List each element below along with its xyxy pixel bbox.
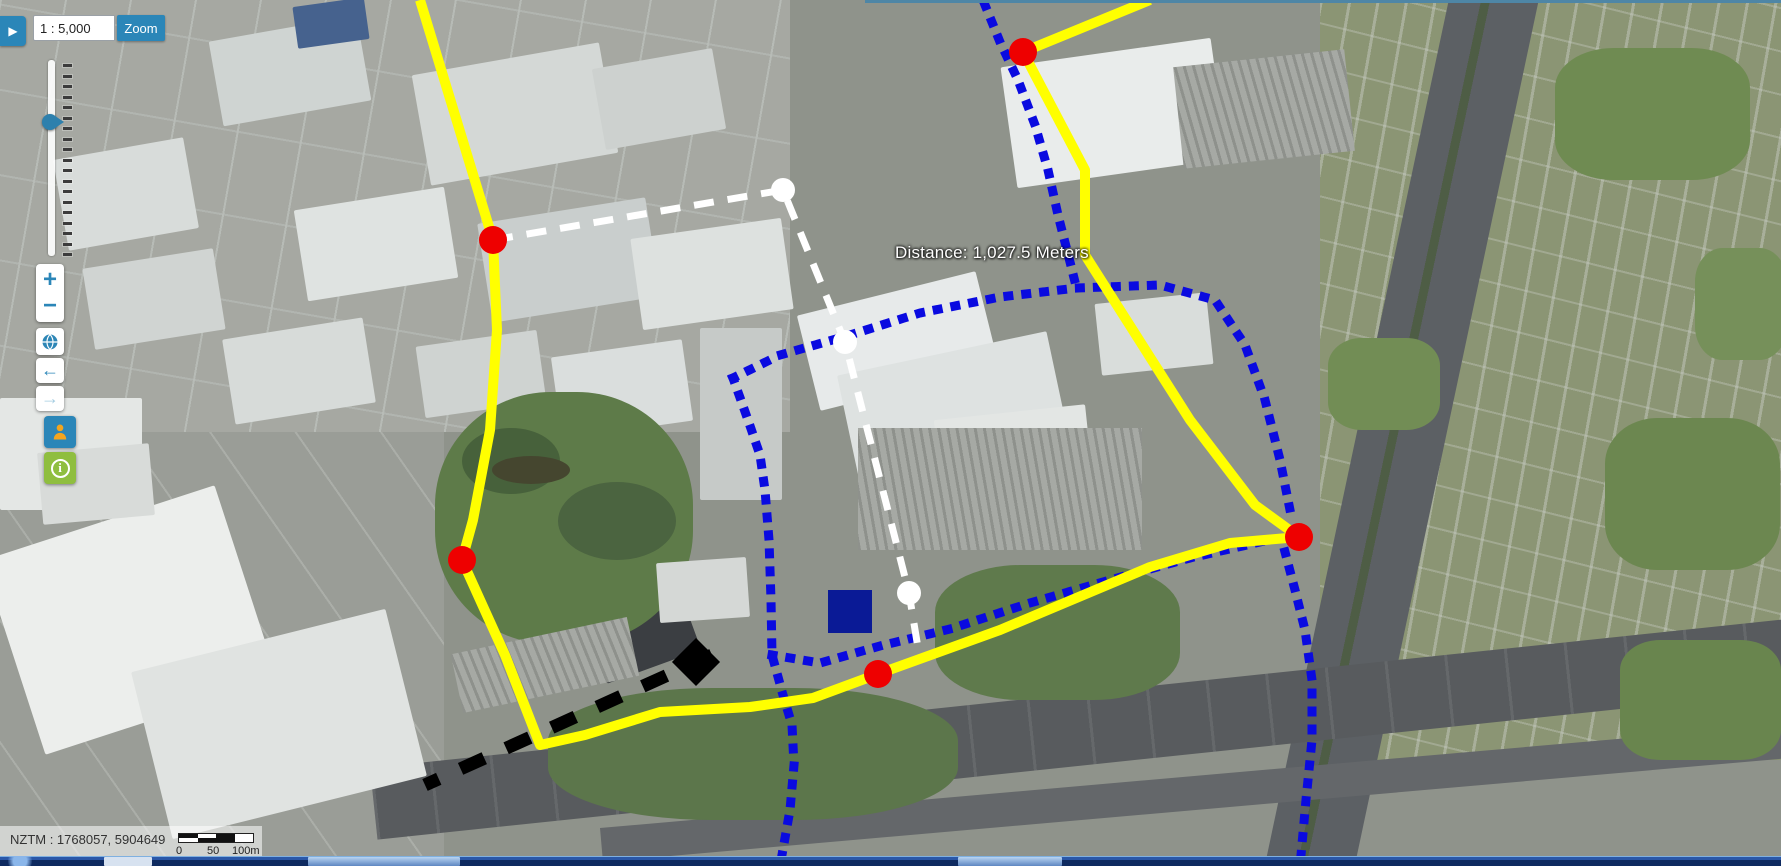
zoom-slider-tick: [63, 85, 72, 88]
zoom-slider-tick: [63, 222, 72, 225]
zoom-slider-tick: [63, 96, 72, 99]
imagery-patch: [548, 688, 958, 820]
imagery-patch: [935, 565, 1180, 700]
zoom-slider-tick: [63, 211, 72, 214]
zoom-slider-tick: [63, 127, 72, 130]
zoom-slider-tick: [63, 75, 72, 78]
map-application-window: Distance: 1,027.5 Meters ▶ Zoom + − ← → …: [0, 0, 1781, 866]
taskbar-button[interactable]: [958, 857, 1062, 866]
zoom-slider-tick: [63, 243, 72, 246]
imagery-patch: [1555, 48, 1750, 180]
chevron-right-icon: ▶: [8, 24, 17, 38]
imagery-patch: [1173, 49, 1355, 168]
forward-arrow-icon: →: [41, 388, 59, 409]
taskbar-button[interactable]: [308, 857, 460, 866]
zoom-slider-tick: [63, 201, 72, 204]
aerial-imagery[interactable]: [0, 0, 1781, 866]
zoom-slider-tick: [63, 159, 72, 162]
globe-icon: [40, 332, 60, 352]
zoom-slider-track[interactable]: [48, 60, 55, 256]
zoom-slider-handle[interactable]: [42, 114, 58, 130]
zoom-out-button[interactable]: −: [36, 293, 64, 319]
zoom-slider-tick: [63, 64, 72, 67]
sidebar-expand-button[interactable]: ▶: [0, 16, 26, 46]
zoom-slider-tick: [63, 190, 72, 193]
zoom-slider-tick: [63, 138, 72, 141]
imagery-patch: [858, 428, 1142, 550]
person-icon: [50, 422, 70, 442]
imagery-patch: [1620, 640, 1781, 760]
identify-person-button[interactable]: [44, 416, 76, 448]
next-extent-button[interactable]: →: [36, 386, 64, 411]
imagery-patch: [1605, 418, 1780, 570]
imagery-patch: [656, 557, 750, 623]
zoom-in-button[interactable]: +: [36, 267, 64, 293]
imagery-patch: [558, 482, 676, 560]
zoom-in-out-panel: + −: [36, 264, 64, 322]
zoom-button[interactable]: Zoom: [117, 15, 165, 41]
imagery-patch: [1328, 338, 1440, 430]
full-extent-button[interactable]: [36, 328, 64, 355]
info-icon: i: [51, 459, 70, 478]
zoom-slider-tick: [63, 180, 72, 183]
zoom-slider-tick: [63, 253, 72, 256]
zoom-slider-tick: [63, 232, 72, 235]
imagery-patch: [1695, 248, 1781, 360]
zoom-slider-tick: [63, 169, 72, 172]
coordinate-readout: NZTM : 1768057, 5904649: [10, 832, 165, 847]
zoom-slider-tick: [63, 148, 72, 151]
zoom-slider-tick: [63, 117, 72, 120]
distance-measurement-label: Distance: 1,027.5 Meters: [895, 243, 1089, 263]
taskbar-button[interactable]: [104, 857, 152, 866]
imagery-patch: [1095, 292, 1214, 375]
previous-extent-button[interactable]: ←: [36, 358, 64, 383]
window-top-edge: [865, 0, 1781, 3]
windows-taskbar[interactable]: [0, 856, 1781, 866]
start-orb-icon[interactable]: [8, 856, 32, 866]
imagery-patch: [700, 328, 782, 500]
scale-input[interactable]: [33, 15, 115, 41]
back-arrow-icon: ←: [41, 360, 59, 381]
zoom-slider-tick: [63, 106, 72, 109]
info-button[interactable]: i: [44, 452, 76, 484]
imagery-patch: [492, 456, 570, 484]
scale-bar: [178, 833, 254, 843]
